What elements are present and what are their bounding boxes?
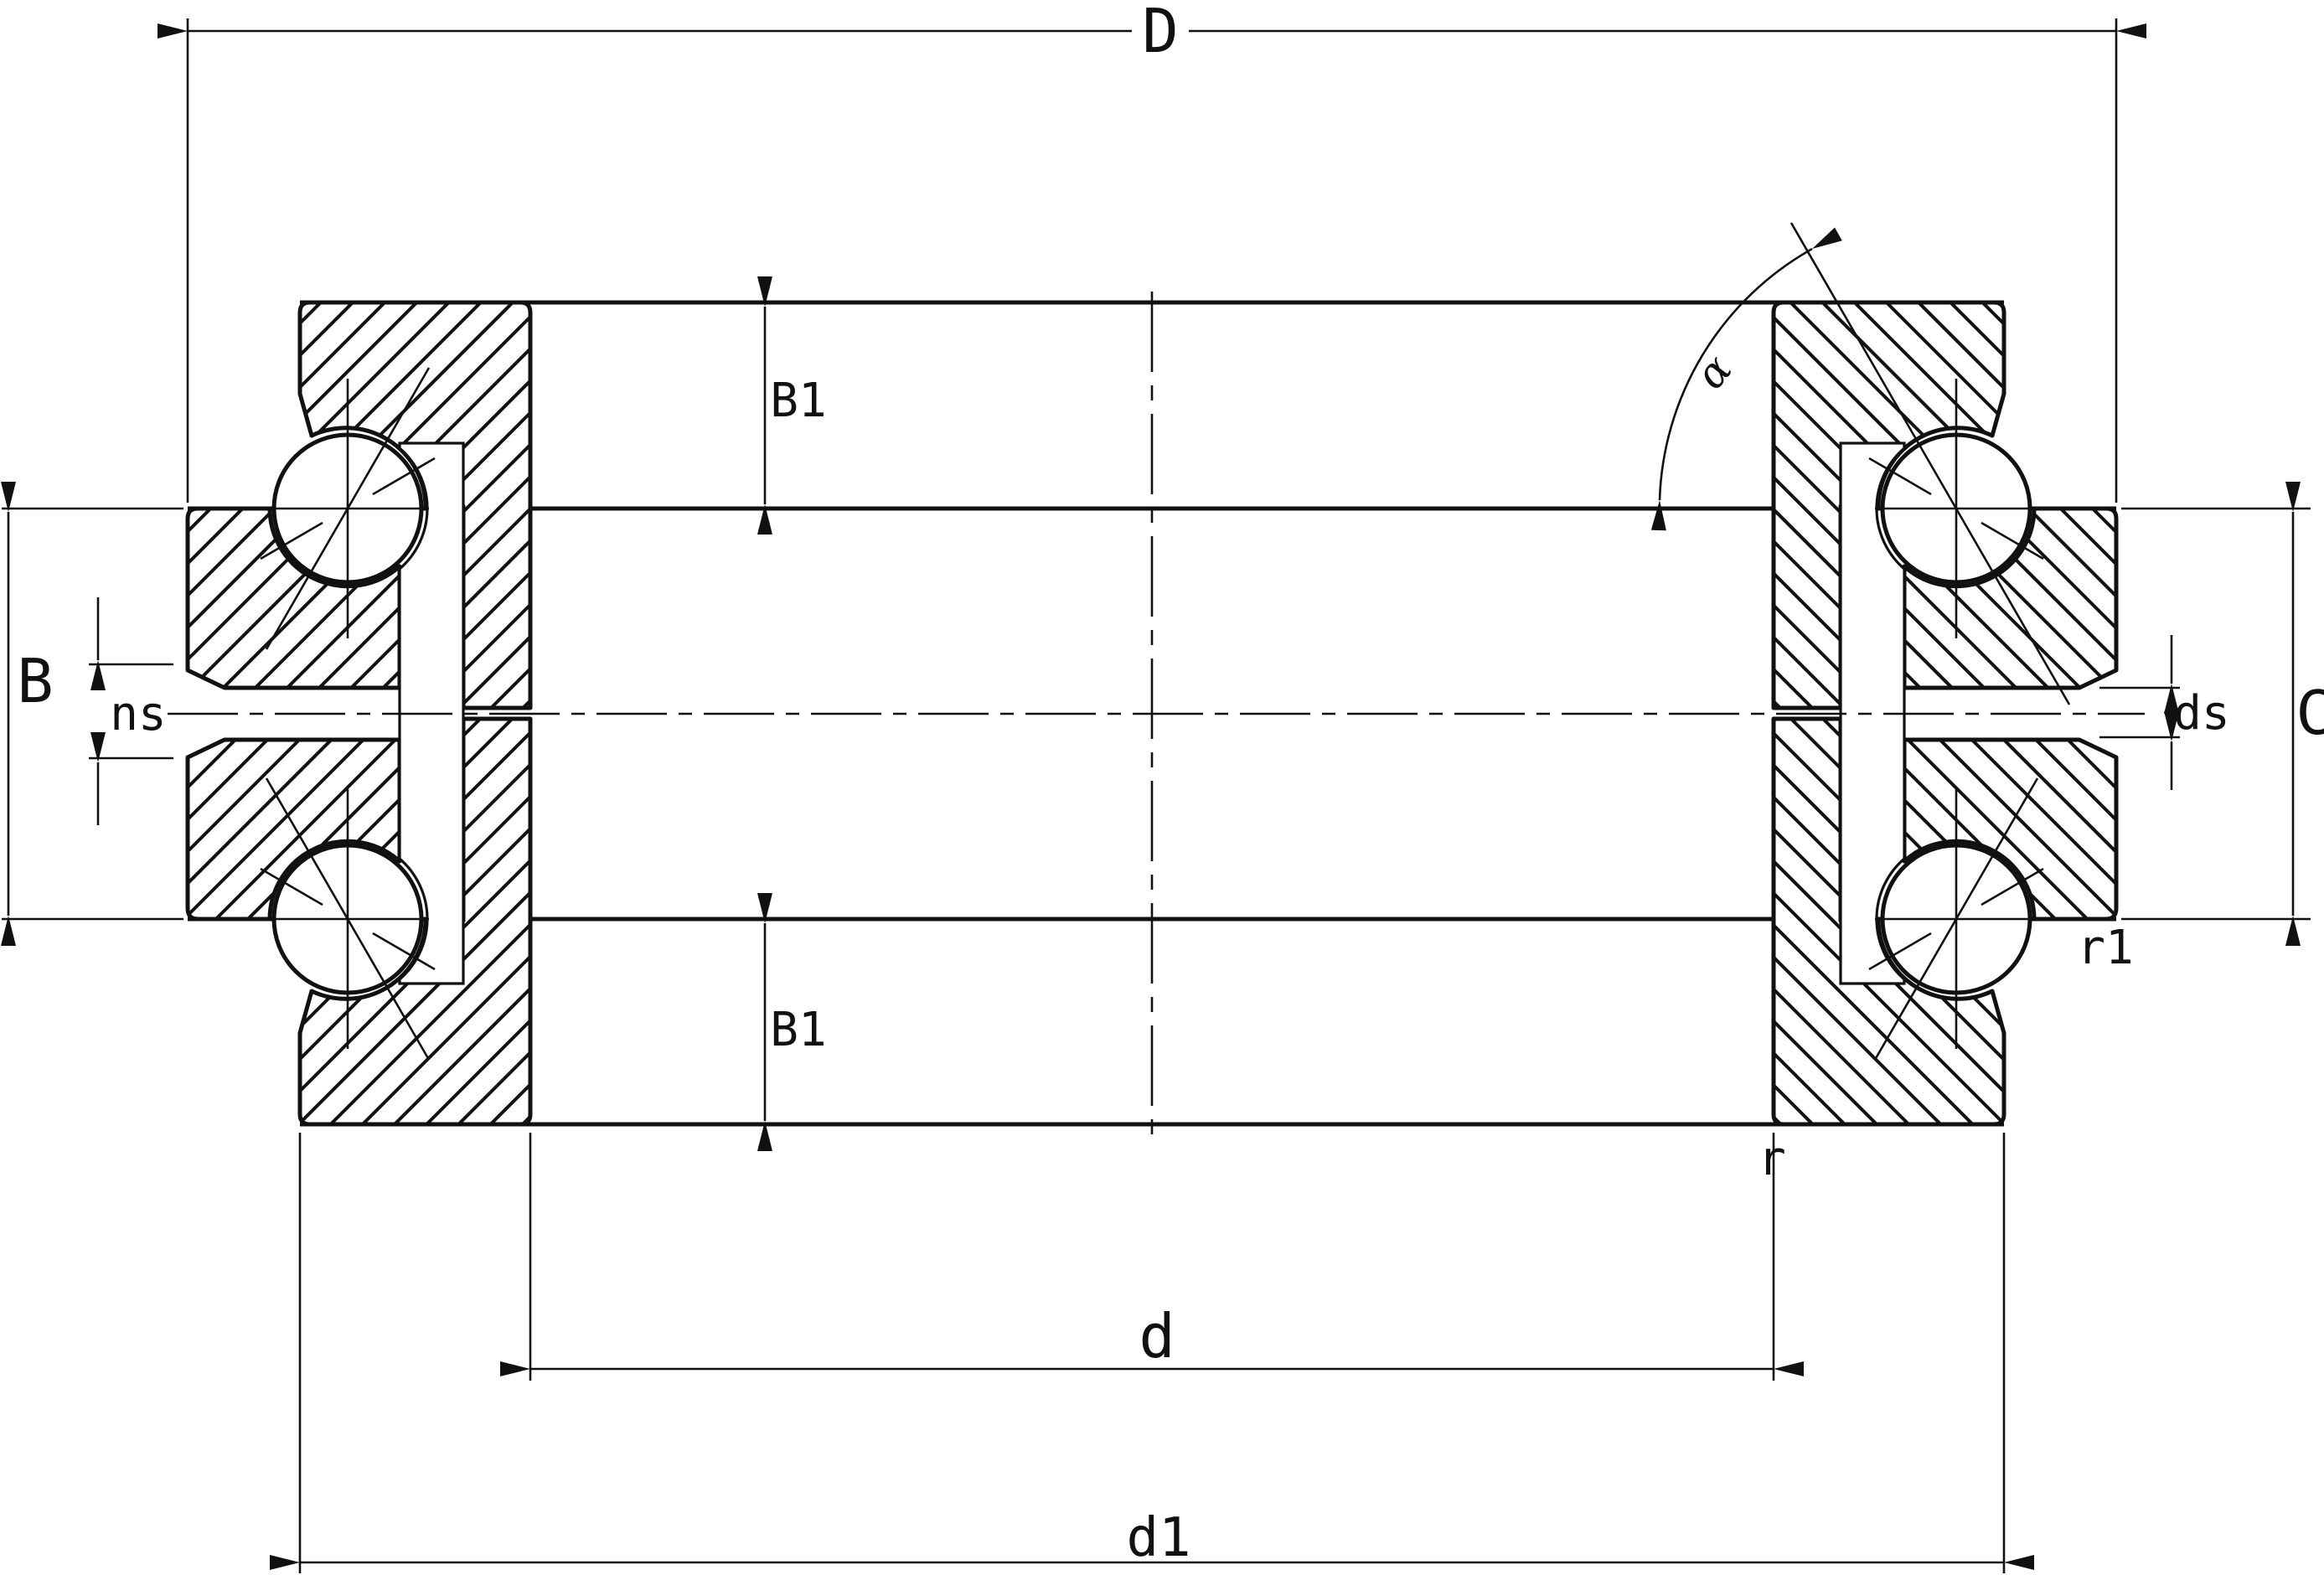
label-overall-width-B: B [17, 646, 53, 716]
label-outer-diameter-D: D [1142, 0, 1178, 66]
label-diameter-d1: d1 [1126, 1507, 1190, 1569]
label-bore-d: d [1139, 1301, 1175, 1371]
drawing-canvas: D B ns B1 B1 d d1 ds C r r1 α [0, 0, 2324, 1575]
label-washer-width-B1-bottom: B1 [770, 1003, 826, 1057]
label-height-C: C [2296, 678, 2324, 748]
label-corner-radius-r: r [1758, 1132, 1786, 1186]
label-slot-ns: ns [110, 687, 166, 741]
label-pin-hole-ds: ds [2173, 686, 2229, 741]
label-washer-width-B1-top: B1 [770, 374, 826, 428]
label-corner-radius-r1: r1 [2077, 921, 2133, 975]
bearing-cross-section-drawing: D B ns B1 B1 d d1 ds C r r1 α [0, 0, 2324, 1575]
label-contact-angle: α [1686, 345, 1741, 398]
